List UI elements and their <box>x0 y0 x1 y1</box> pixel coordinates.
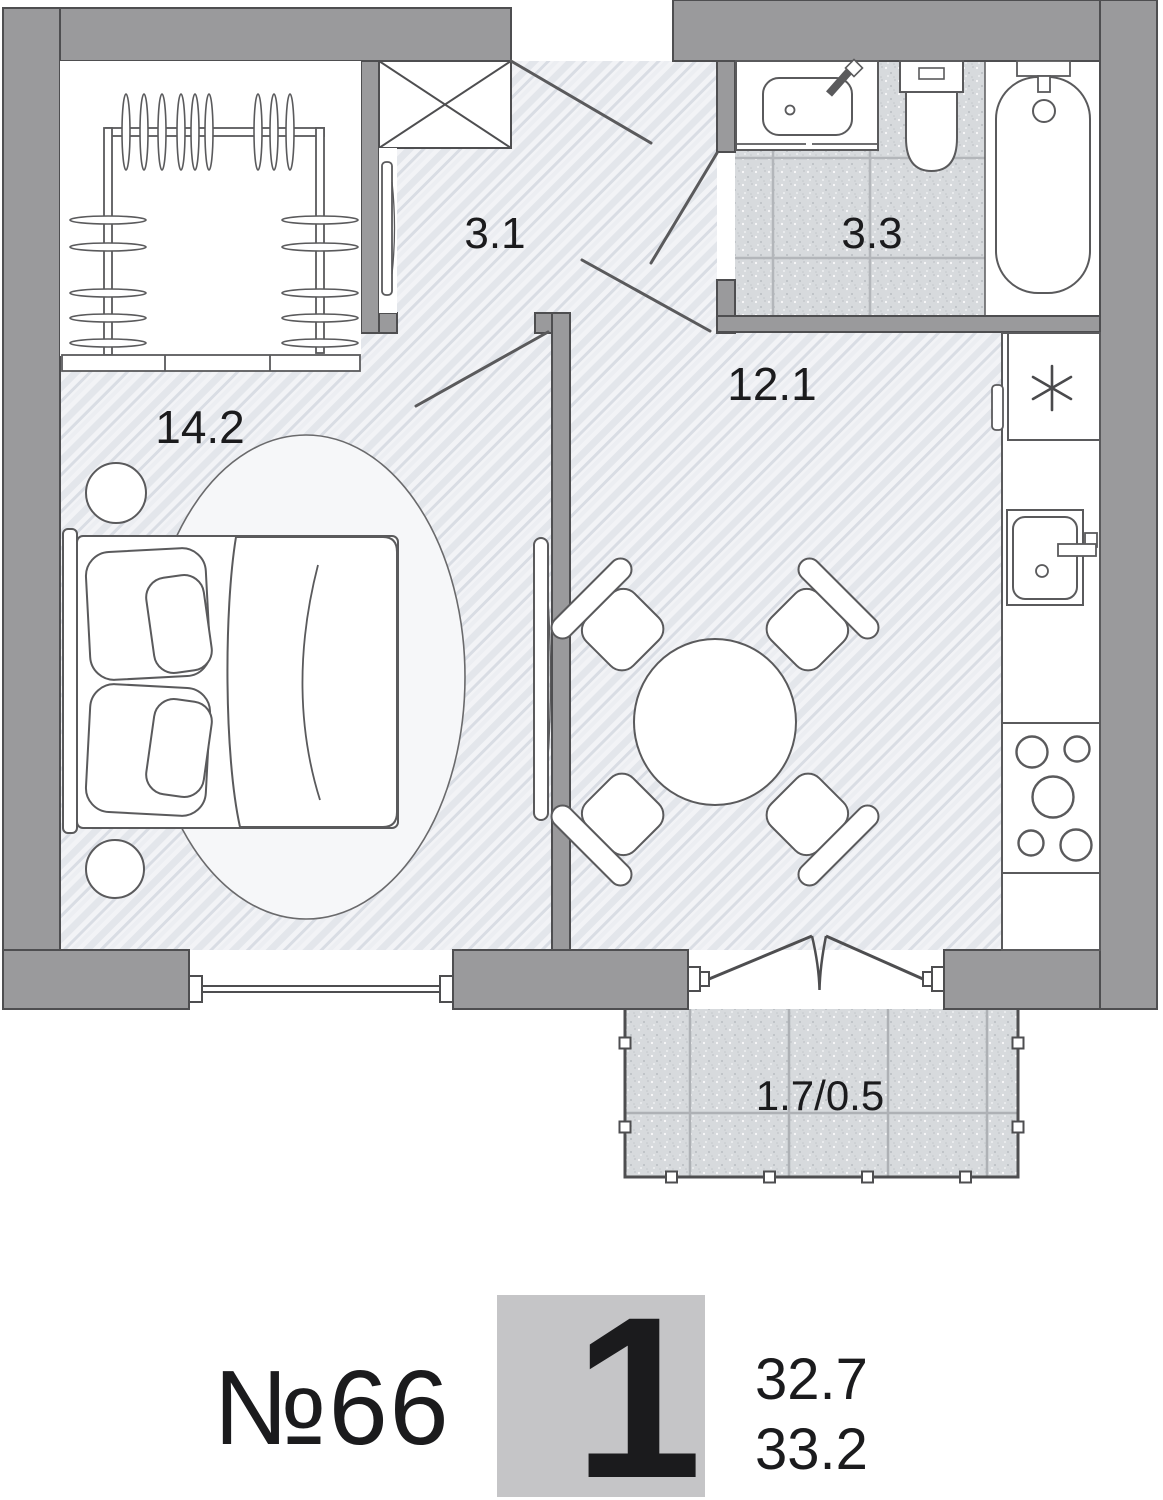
bathroom-sink <box>736 60 878 150</box>
tv-panel <box>534 538 551 820</box>
room-label-bedroom: 14.2 <box>155 401 245 453</box>
wall-right <box>1100 0 1157 1009</box>
wall-top-right <box>673 0 1100 61</box>
wall-top-left <box>3 8 511 61</box>
legend: №66 1 32.7 33.2 <box>213 1269 868 1500</box>
bed <box>63 529 398 833</box>
wall-bottom-2 <box>453 950 688 1009</box>
bed-headboard <box>63 529 77 833</box>
stove <box>1002 723 1100 873</box>
wall-bathroom-left-upper <box>717 61 735 152</box>
wall-bottom-1 <box>3 950 189 1009</box>
hall-mirror <box>379 148 397 313</box>
room-label-kitchen-living: 12.1 <box>727 358 817 410</box>
counter-handle <box>992 385 1003 430</box>
bathtub-faucet <box>1017 61 1070 76</box>
nightstand-top <box>86 463 146 523</box>
room-label-hallway: 3.1 <box>464 209 525 258</box>
nightstand-bottom <box>86 840 144 898</box>
wardrobe-front-panel <box>62 355 360 371</box>
area-living: 32.7 <box>755 1347 868 1412</box>
wall-bottom-3 <box>944 950 1100 1009</box>
apartment-number: №66 <box>213 1349 451 1467</box>
wall-niche-block <box>379 313 397 333</box>
room-label-bathroom: 3.3 <box>841 209 902 258</box>
dining-table <box>634 639 796 805</box>
bedroom-window <box>189 976 453 1002</box>
shaft-crossed-box <box>379 61 511 148</box>
kitchen-counter <box>992 333 1100 950</box>
room-count-digit: 1 <box>574 1269 702 1500</box>
wall-bathroom-bottom <box>717 316 1100 332</box>
bed-duvet <box>227 537 397 827</box>
wall-left <box>3 8 60 1009</box>
room-label-balcony: 1.7/0.5 <box>756 1072 884 1119</box>
faucet-icon <box>1058 544 1096 556</box>
wardrobe <box>60 61 361 371</box>
toilet <box>900 61 963 171</box>
area-total: 33.2 <box>755 1417 868 1482</box>
floor-plan: 3.1 3.3 14.2 12.1 1.7/0.5 №66 1 32.7 33.… <box>0 0 1163 1500</box>
wall-wardrobe-right <box>361 61 379 333</box>
bathtub <box>996 61 1090 293</box>
floor-plan-page: 3.1 3.3 14.2 12.1 1.7/0.5 №66 1 32.7 33.… <box>0 0 1163 1500</box>
kitchen-sink <box>1007 510 1097 605</box>
